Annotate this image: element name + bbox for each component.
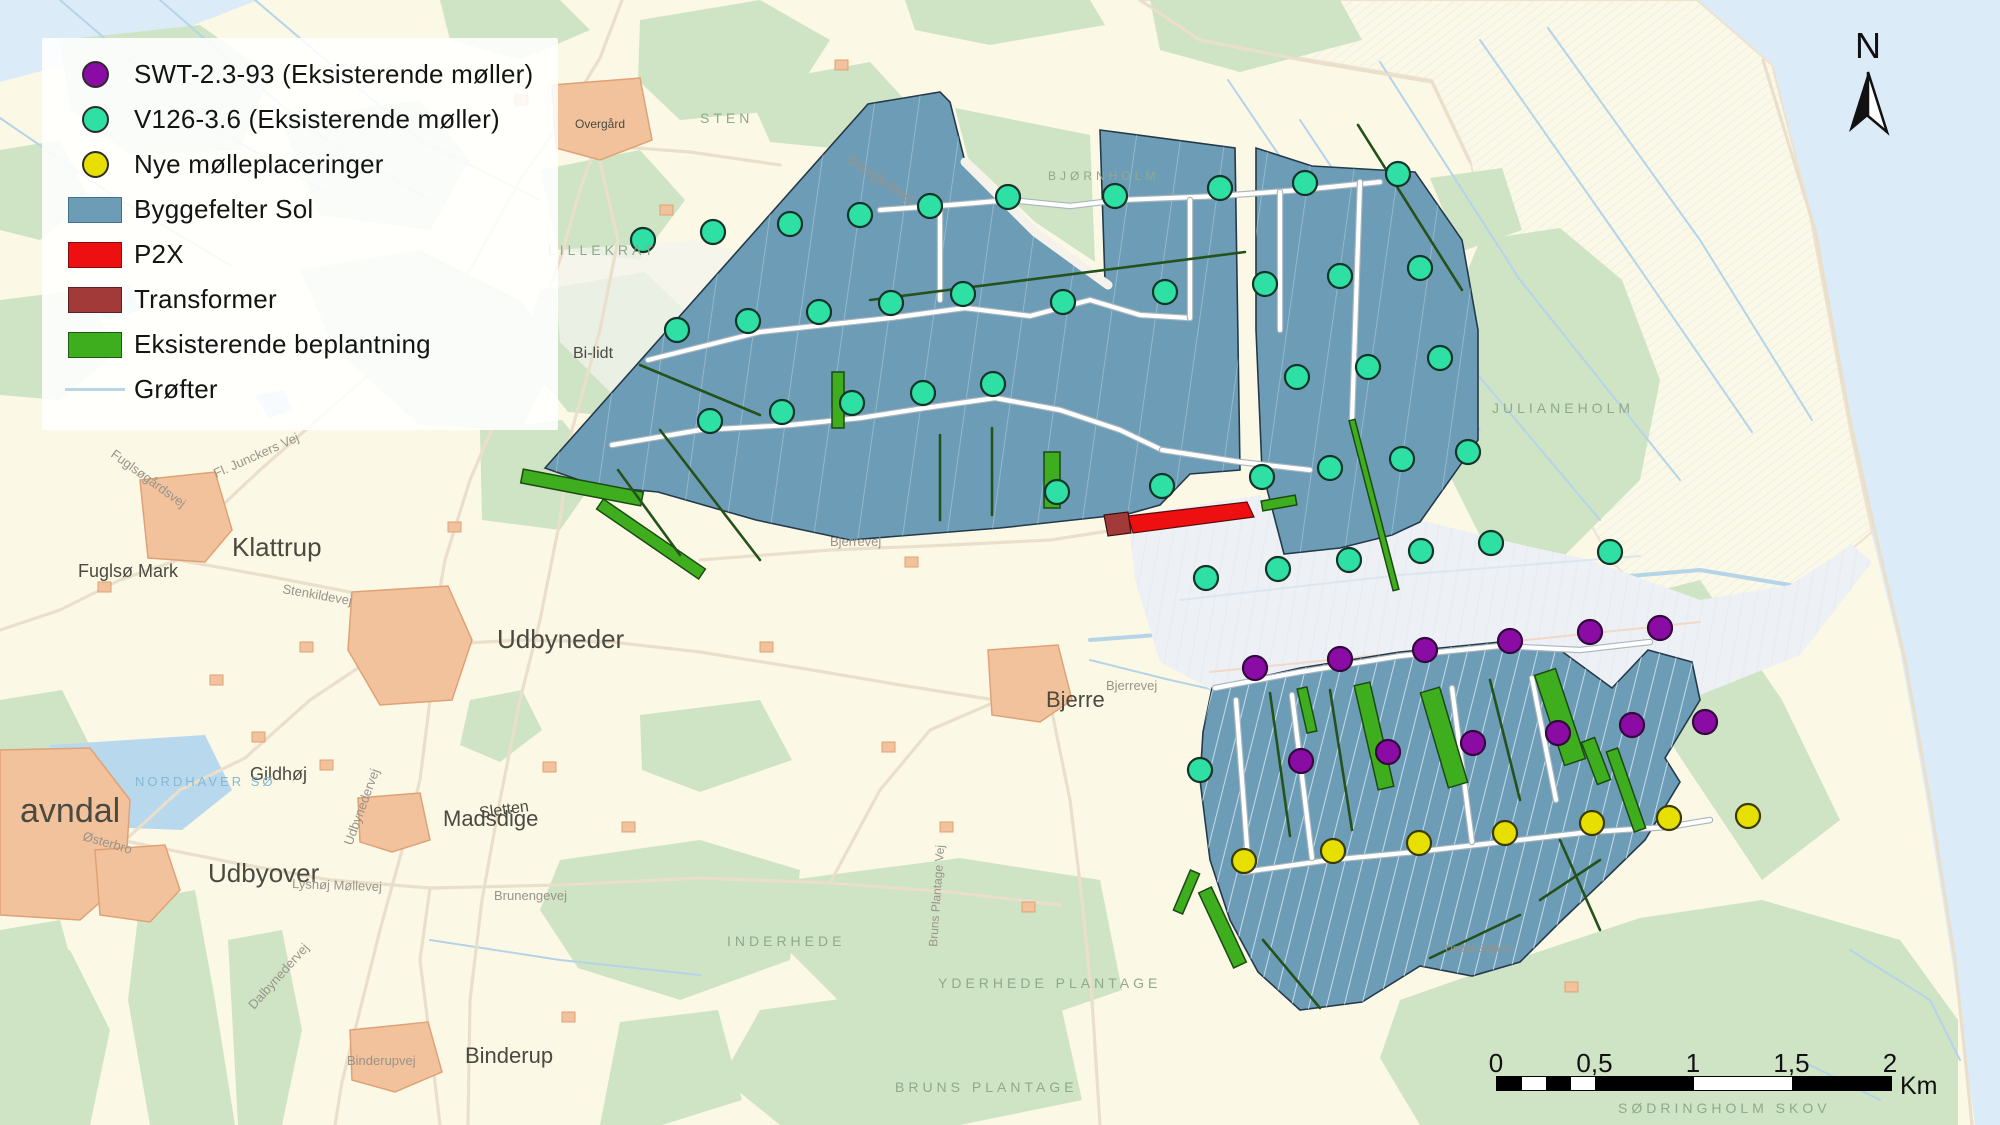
turbine-dot-v126 <box>996 185 1020 209</box>
farm-building <box>543 762 556 772</box>
scale-bar-segment <box>1522 1077 1547 1090</box>
farm-building <box>562 1012 575 1022</box>
legend-circle-swatch <box>56 151 134 178</box>
farm-building <box>252 732 265 742</box>
scale-bar-segment <box>1571 1077 1596 1090</box>
map-label-road: Under Bakken <box>1445 943 1515 955</box>
turbine-dot-swt <box>1578 620 1602 644</box>
turbine-dot-v126 <box>848 203 872 227</box>
scale-bar-segment <box>1546 1077 1571 1090</box>
farm-building <box>210 675 223 685</box>
map-label-town: Fuglsø Mark <box>78 561 179 581</box>
turbine-dot-new <box>1580 811 1604 835</box>
map-label-water: NORDHAVER SØ <box>135 774 276 789</box>
farm-building <box>448 522 461 532</box>
map-label-area: BJØRNHOLM <box>1048 169 1159 183</box>
forest-patch <box>0 950 110 1125</box>
turbine-dot-v126 <box>1045 480 1069 504</box>
turbine-dot-v126 <box>1153 280 1177 304</box>
turbine-dot-swt <box>1328 647 1352 671</box>
legend-item: V126-3.6 (Eksisterende møller) <box>56 97 540 142</box>
farm-building <box>660 205 673 215</box>
turbine-dot-v126 <box>770 400 794 424</box>
turbine-dot-v126 <box>879 291 903 315</box>
turbine-dot-v126 <box>1293 171 1317 195</box>
map-label-town: Bi-lidt <box>573 345 614 362</box>
legend-rect-swatch <box>56 332 134 358</box>
legend-panel: SWT-2.3-93 (Eksisterende møller)V126-3.6… <box>42 38 558 430</box>
legend-item: Transformer <box>56 277 540 322</box>
map-label-road: Bjerrevej <box>1106 678 1157 693</box>
legend-item: Byggefelter Sol <box>56 187 540 232</box>
farm-building <box>835 60 848 70</box>
turbine-dot-v126 <box>951 282 975 306</box>
map-label-area: YDERHEDE PLANTAGE <box>938 975 1161 991</box>
turbine-dot-v126 <box>1103 184 1127 208</box>
turbine-dot-v126 <box>1408 256 1432 280</box>
legend-circle-swatch <box>56 61 134 88</box>
scale-bar-tick-label: 1 <box>1686 1048 1700 1079</box>
turbine-dot-v126 <box>1150 474 1174 498</box>
turbine-dot-v126 <box>807 300 831 324</box>
legend-item-label: Grøfter <box>134 374 218 405</box>
turbine-dot-swt <box>1620 713 1644 737</box>
scale-bar-tick-label: 2 <box>1883 1048 1897 1079</box>
turbine-dot-v126 <box>1428 346 1452 370</box>
legend-line-swatch <box>56 388 134 391</box>
legend-item-label: Byggefelter Sol <box>134 194 313 225</box>
turbine-dot-v126 <box>665 318 689 342</box>
turbine-dot-swt <box>1498 629 1522 653</box>
map-label-area: LILLEKRAT <box>548 242 657 258</box>
scale-bar-tick-label: 1,5 <box>1773 1048 1809 1079</box>
map-canvas: avndal Udbyneder Udbyover Klattrup Binde… <box>0 0 2000 1125</box>
forest-patch <box>905 0 1105 45</box>
turbine-dot-swt <box>1693 710 1717 734</box>
map-label-town: Bjerre <box>1046 687 1105 712</box>
turbine-dot-swt <box>1413 638 1437 662</box>
turbine-dot-swt <box>1376 740 1400 764</box>
turbine-dot-v126 <box>1051 290 1075 314</box>
legend-item: P2X <box>56 232 540 277</box>
turbine-dot-v126 <box>1208 176 1232 200</box>
turbine-dot-v126 <box>1318 456 1342 480</box>
turbine-dot-v126 <box>736 309 760 333</box>
legend-item-label: SWT-2.3-93 (Eksisterende møller) <box>134 59 533 90</box>
scale-bar-tick-label: 0,5 <box>1576 1048 1612 1079</box>
turbine-dot-v126 <box>1328 264 1352 288</box>
turbine-dot-new <box>1493 821 1517 845</box>
forest-patch <box>722 988 1082 1125</box>
map-label-area: INDERHEDE <box>727 933 845 949</box>
turbine-dot-v126 <box>1194 566 1218 590</box>
map-label-town: Binderup <box>465 1043 553 1068</box>
turbine-dot-v126 <box>698 409 722 433</box>
map-label-town: Klattrup <box>232 532 322 562</box>
turbine-dot-swt <box>1289 749 1313 773</box>
turbine-dot-v126 <box>1390 447 1414 471</box>
turbine-dot-v126 <box>778 212 802 236</box>
scale-bar-segment <box>1694 1077 1793 1090</box>
transformer-area <box>1104 512 1131 536</box>
scale-bar: 00,511,52 Km <box>1496 1048 1936 1091</box>
turbine-dot-swt <box>1648 616 1672 640</box>
legend-circle-swatch <box>56 106 134 133</box>
scale-bar-tick-label: 0 <box>1489 1048 1503 1079</box>
farm-building <box>1565 982 1578 992</box>
map-label-town: Udbyneder <box>497 624 625 654</box>
turbine-dot-v126 <box>1456 440 1480 464</box>
forest-patch <box>540 840 800 1000</box>
town-area <box>348 586 472 705</box>
legend-item: Grøfter <box>56 367 540 412</box>
scale-bar-unit: Km <box>1900 1072 1938 1101</box>
road <box>420 888 440 1125</box>
turbine-dot-v126 <box>1337 548 1361 572</box>
legend-item-label: Nye mølleplaceringer <box>134 149 384 180</box>
scale-bar-segment <box>1792 1077 1891 1090</box>
map-label-road: Binderupvej <box>347 1053 416 1068</box>
turbine-dot-swt <box>1546 721 1570 745</box>
forest-patch <box>128 890 235 1125</box>
farm-building <box>760 642 773 652</box>
turbine-dot-swt <box>1461 731 1485 755</box>
turbine-dot-new <box>1232 849 1256 873</box>
turbine-dot-v126 <box>1285 365 1309 389</box>
legend-item-label: Eksisterende beplantning <box>134 329 431 360</box>
legend-rect-swatch <box>56 197 134 223</box>
turbine-dot-v126 <box>1386 162 1410 186</box>
turbine-dot-v126 <box>1188 758 1212 782</box>
scale-bar-segments <box>1496 1076 1892 1091</box>
turbine-dot-v126 <box>840 391 864 415</box>
turbine-dot-swt <box>1243 656 1267 680</box>
legend-rect-swatch <box>56 287 134 313</box>
map-label-area: JULIANEHOLM <box>1492 400 1634 416</box>
scale-bar-labels: 00,511,52 <box>1496 1048 1936 1076</box>
turbine-dot-new <box>1407 831 1431 855</box>
legend-item-label: V126-3.6 (Eksisterende møller) <box>134 104 500 135</box>
turbine-dot-v126 <box>911 381 935 405</box>
legend-item-label: Transformer <box>134 284 277 315</box>
farm-building <box>1022 902 1035 912</box>
planting-strip <box>1173 870 1199 914</box>
farm-building <box>98 582 111 592</box>
map-label-area: SØDRINGHOLM SKOV <box>1618 1100 1831 1116</box>
map-label-road: Bjerrevej <box>830 534 881 549</box>
legend-item: Eksisterende beplantning <box>56 322 540 367</box>
turbine-dot-v126 <box>1266 557 1290 581</box>
road <box>830 702 995 883</box>
turbine-dot-v126 <box>1409 539 1433 563</box>
turbine-dot-v126 <box>701 220 725 244</box>
forest-patch <box>640 700 792 792</box>
turbine-dot-v126 <box>1479 531 1503 555</box>
legend-item: Nye mølleplaceringer <box>56 142 540 187</box>
map-label-road: Lyshøj Møllevej <box>292 876 382 894</box>
legend-item-label: P2X <box>134 239 184 270</box>
turbine-dot-new <box>1736 804 1760 828</box>
turbine-dot-v126 <box>1253 272 1277 296</box>
farm-building <box>882 742 895 752</box>
turbine-dot-v126 <box>1250 465 1274 489</box>
legend-rect-swatch <box>56 242 134 268</box>
turbine-dot-v126 <box>1598 540 1622 564</box>
north-label: N <box>1855 25 1881 66</box>
forest-patch <box>460 690 542 762</box>
farm-building <box>622 822 635 832</box>
map-label-area: BRUNS PLANTAGE <box>895 1079 1078 1095</box>
turbine-dot-v126 <box>981 372 1005 396</box>
turbine-dot-new <box>1657 806 1681 830</box>
turbine-dot-v126 <box>918 194 942 218</box>
legend-item: SWT-2.3-93 (Eksisterende møller) <box>56 52 540 97</box>
turbine-dot-v126 <box>1356 355 1380 379</box>
map-label-town: Overgård <box>575 117 625 131</box>
map-label-road: Brunengevej <box>494 888 567 903</box>
forest-patch <box>600 1010 742 1125</box>
scale-bar-segment <box>1497 1077 1522 1090</box>
farm-building <box>320 760 333 770</box>
map-label-town: avndal <box>20 792 120 830</box>
farm-building <box>905 557 918 567</box>
map-label-area: STEN <box>700 110 753 126</box>
turbine-dot-new <box>1321 839 1345 863</box>
planting-strip <box>597 499 706 579</box>
farm-building <box>940 822 953 832</box>
farm-building <box>300 642 313 652</box>
scale-bar-segment <box>1595 1077 1694 1090</box>
